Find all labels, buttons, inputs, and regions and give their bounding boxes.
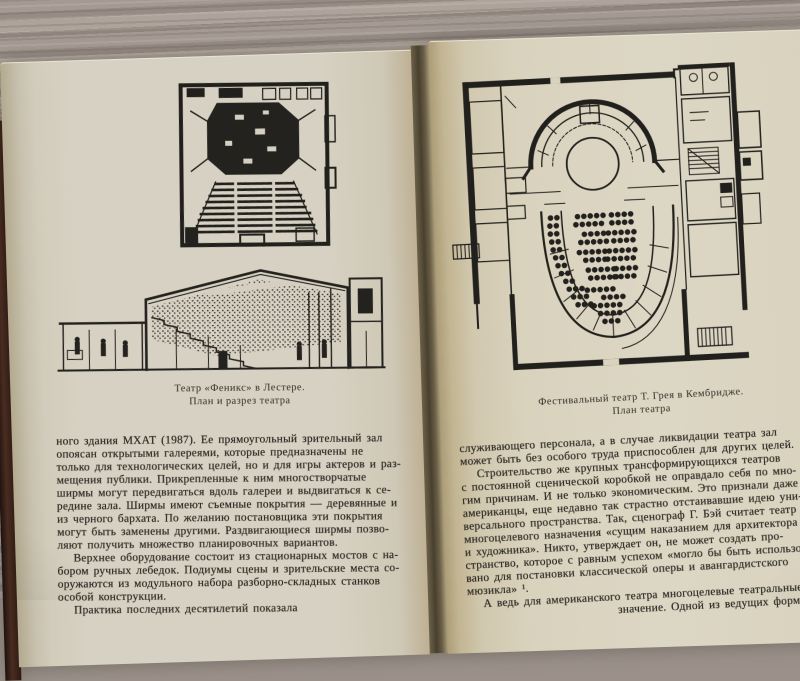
right-page: Фестивальный театр Т. Грея в Кембридже. …: [429, 29, 800, 654]
left-body-text: ного здания МХАТ (1987). Ее прямоугольны…: [56, 432, 416, 618]
left-figure-caption: Театр «Феникс» в Лестере. План и разрез …: [40, 381, 440, 410]
text-line: Практика последних десятилетий показала: [58, 601, 416, 618]
right-figure-caption: Фестивальный театр Т. Грея в Кембридже. …: [451, 382, 800, 427]
phoenix-theatre-plan-figure: [166, 76, 343, 258]
book-spread: Театр «Феникс» в Лестере. План и разрез …: [0, 29, 800, 666]
phoenix-theatre-section-figure: [54, 257, 387, 378]
left-page: Театр «Феникс» в Лестере. План и разрез …: [0, 50, 430, 668]
cambridge-theatre-plan-figure: [442, 52, 793, 384]
right-body-text: служивающего персонала, а в случае ликви…: [459, 423, 800, 624]
